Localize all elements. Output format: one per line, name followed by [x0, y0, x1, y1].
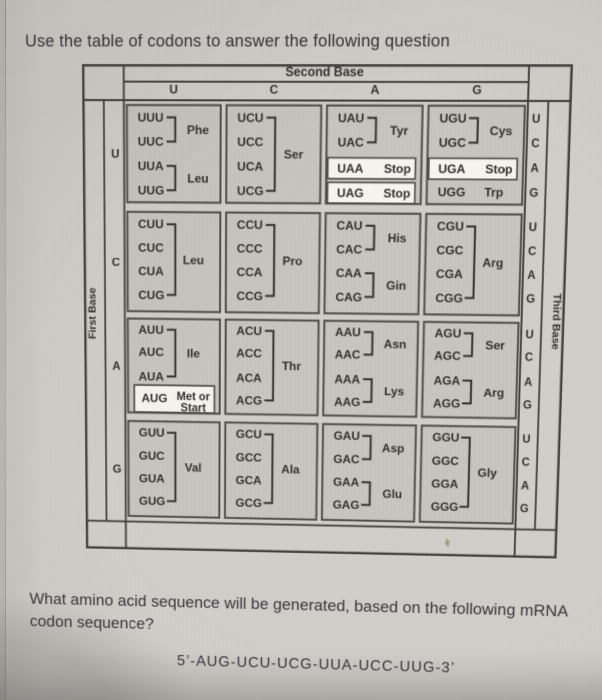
svg-text:UGA: UGA: [438, 162, 466, 176]
svg-text:GUA: GUA: [139, 472, 165, 486]
svg-text:U: U: [169, 82, 178, 96]
svg-text:UUG: UUG: [138, 183, 164, 197]
svg-text:Ile: Ile: [187, 347, 200, 361]
svg-text:C: C: [531, 138, 540, 150]
svg-text:AUU: AUU: [138, 323, 164, 337]
svg-text:GCG: GCG: [235, 496, 262, 510]
svg-text:Third Base: Third Base: [549, 293, 563, 349]
svg-text:UAU: UAU: [338, 111, 365, 125]
svg-text:ACU: ACU: [236, 324, 262, 338]
svg-text:G: G: [523, 400, 532, 412]
svg-text:UAC: UAC: [337, 135, 364, 149]
svg-text:Stop: Stop: [485, 162, 513, 176]
svg-text:GAU: GAU: [334, 429, 361, 443]
svg-text:Second Base: Second Base: [285, 65, 364, 79]
svg-text:Ala: Ala: [281, 463, 300, 477]
svg-text:G: G: [526, 294, 535, 306]
svg-text:First Base: First Base: [87, 288, 99, 340]
svg-text:GGG: GGG: [431, 500, 459, 514]
svg-text:AGC: AGC: [434, 349, 461, 363]
svg-text:GGC: GGC: [432, 454, 460, 468]
svg-text:Arg: Arg: [482, 256, 503, 270]
svg-text:U: U: [525, 329, 534, 341]
svg-text:CGU: CGU: [437, 219, 464, 233]
svg-text:C: C: [528, 246, 537, 258]
svg-text:GUC: GUC: [139, 449, 165, 463]
svg-text:Trp: Trp: [484, 185, 503, 199]
svg-text:Glu: Glu: [382, 487, 402, 501]
svg-text:Phe: Phe: [187, 123, 209, 137]
svg-text:A: A: [371, 83, 380, 97]
svg-text:ACC: ACC: [236, 347, 262, 361]
svg-text:AGU: AGU: [434, 326, 461, 340]
svg-text:Stop: Stop: [383, 186, 410, 200]
svg-text:C: C: [112, 255, 121, 269]
svg-text:GCU: GCU: [236, 427, 262, 441]
svg-text:Thr: Thr: [282, 359, 301, 373]
svg-text:GCA: GCA: [236, 473, 262, 487]
svg-text:GGU: GGU: [432, 430, 460, 444]
svg-text:Gin: Gin: [386, 279, 406, 293]
svg-text:CCG: CCG: [236, 289, 262, 303]
svg-text:CAA: CAA: [336, 266, 362, 280]
svg-text:Val: Val: [185, 461, 202, 475]
svg-text:Ser: Ser: [485, 338, 505, 352]
svg-text:CCU: CCU: [237, 218, 263, 232]
svg-text:G: G: [529, 187, 538, 199]
svg-text:ACG: ACG: [236, 393, 262, 407]
svg-text:UUA: UUA: [138, 159, 164, 173]
svg-text:CUA: CUA: [138, 264, 164, 278]
svg-text:GUU: GUU: [139, 426, 165, 440]
svg-text:U: U: [111, 147, 120, 161]
svg-text:AAC: AAC: [335, 348, 361, 362]
svg-text:U: U: [532, 113, 541, 125]
svg-text:Leu: Leu: [187, 171, 208, 185]
svg-text:UCC: UCC: [237, 135, 263, 149]
svg-text:G: G: [520, 503, 529, 515]
svg-text:Pro: Pro: [282, 254, 303, 268]
svg-text:UUC: UUC: [138, 135, 164, 149]
svg-text:CUG: CUG: [138, 288, 164, 302]
svg-text:UCU: UCU: [237, 111, 263, 125]
svg-text:CGA: CGA: [436, 267, 463, 281]
svg-text:CAG: CAG: [335, 290, 362, 304]
svg-text:Cys: Cys: [490, 124, 513, 138]
svg-text:A: A: [112, 359, 121, 373]
svg-text:UCA: UCA: [237, 159, 263, 173]
svg-text:CUC: CUC: [138, 241, 164, 255]
svg-text:UCG: UCG: [237, 184, 264, 198]
svg-text:C: C: [525, 352, 534, 364]
svg-text:UUU: UUU: [138, 110, 164, 124]
svg-text:AGA: AGA: [433, 374, 460, 388]
svg-text:AUC: AUC: [138, 345, 164, 359]
svg-text:UGU: UGU: [439, 111, 467, 125]
svg-text:A: A: [527, 270, 536, 282]
svg-text:UGC: UGC: [439, 136, 467, 150]
svg-text:UAG: UAG: [337, 186, 364, 200]
svg-text:Asn: Asn: [384, 337, 407, 351]
svg-text:UGG: UGG: [438, 185, 466, 199]
svg-text:CUU: CUU: [138, 217, 164, 231]
svg-text:CGG: CGG: [435, 291, 463, 305]
svg-text:A: A: [524, 377, 533, 389]
svg-text:Asp: Asp: [382, 441, 405, 455]
svg-text:AAG: AAG: [334, 395, 361, 409]
svg-text:AAA: AAA: [334, 372, 360, 386]
svg-text:Stop: Stop: [384, 162, 411, 176]
svg-text:G: G: [472, 83, 482, 98]
svg-text:GAA: GAA: [333, 475, 359, 489]
svg-text:C: C: [521, 457, 530, 469]
svg-text:UAA: UAA: [337, 161, 364, 175]
svg-text:Leu: Leu: [183, 253, 204, 267]
svg-text:AUA: AUA: [139, 370, 164, 384]
svg-text:CCC: CCC: [237, 242, 263, 256]
svg-text:Tyr: Tyr: [390, 123, 409, 137]
svg-text:GUG: GUG: [139, 494, 165, 508]
svg-text:U: U: [522, 434, 531, 446]
svg-text:His: His: [388, 231, 407, 245]
svg-text:GAG: GAG: [333, 498, 360, 512]
svg-text:AUG: AUG: [141, 391, 167, 405]
svg-text:Ser: Ser: [284, 148, 304, 162]
svg-text:Arg: Arg: [483, 386, 504, 400]
svg-text:CAU: CAU: [336, 219, 362, 233]
svg-text:C: C: [270, 83, 279, 97]
svg-text:CCA: CCA: [237, 265, 263, 279]
svg-text:GAC: GAC: [333, 452, 360, 466]
svg-text:CAC: CAC: [336, 243, 362, 257]
svg-text:CGC: CGC: [436, 243, 463, 257]
svg-text:Lys: Lys: [384, 384, 405, 398]
svg-text:G: G: [113, 462, 122, 476]
svg-text:Gly: Gly: [477, 466, 497, 480]
svg-text:A: A: [521, 480, 530, 492]
svg-text:Start: Start: [181, 402, 206, 415]
svg-text:ACA: ACA: [236, 371, 262, 385]
svg-text:U: U: [528, 222, 537, 234]
svg-text:A: A: [530, 163, 539, 175]
svg-text:AAU: AAU: [335, 325, 361, 339]
svg-text:AGG: AGG: [433, 396, 461, 410]
svg-text:GCC: GCC: [236, 450, 262, 464]
svg-text:GGA: GGA: [431, 477, 458, 491]
